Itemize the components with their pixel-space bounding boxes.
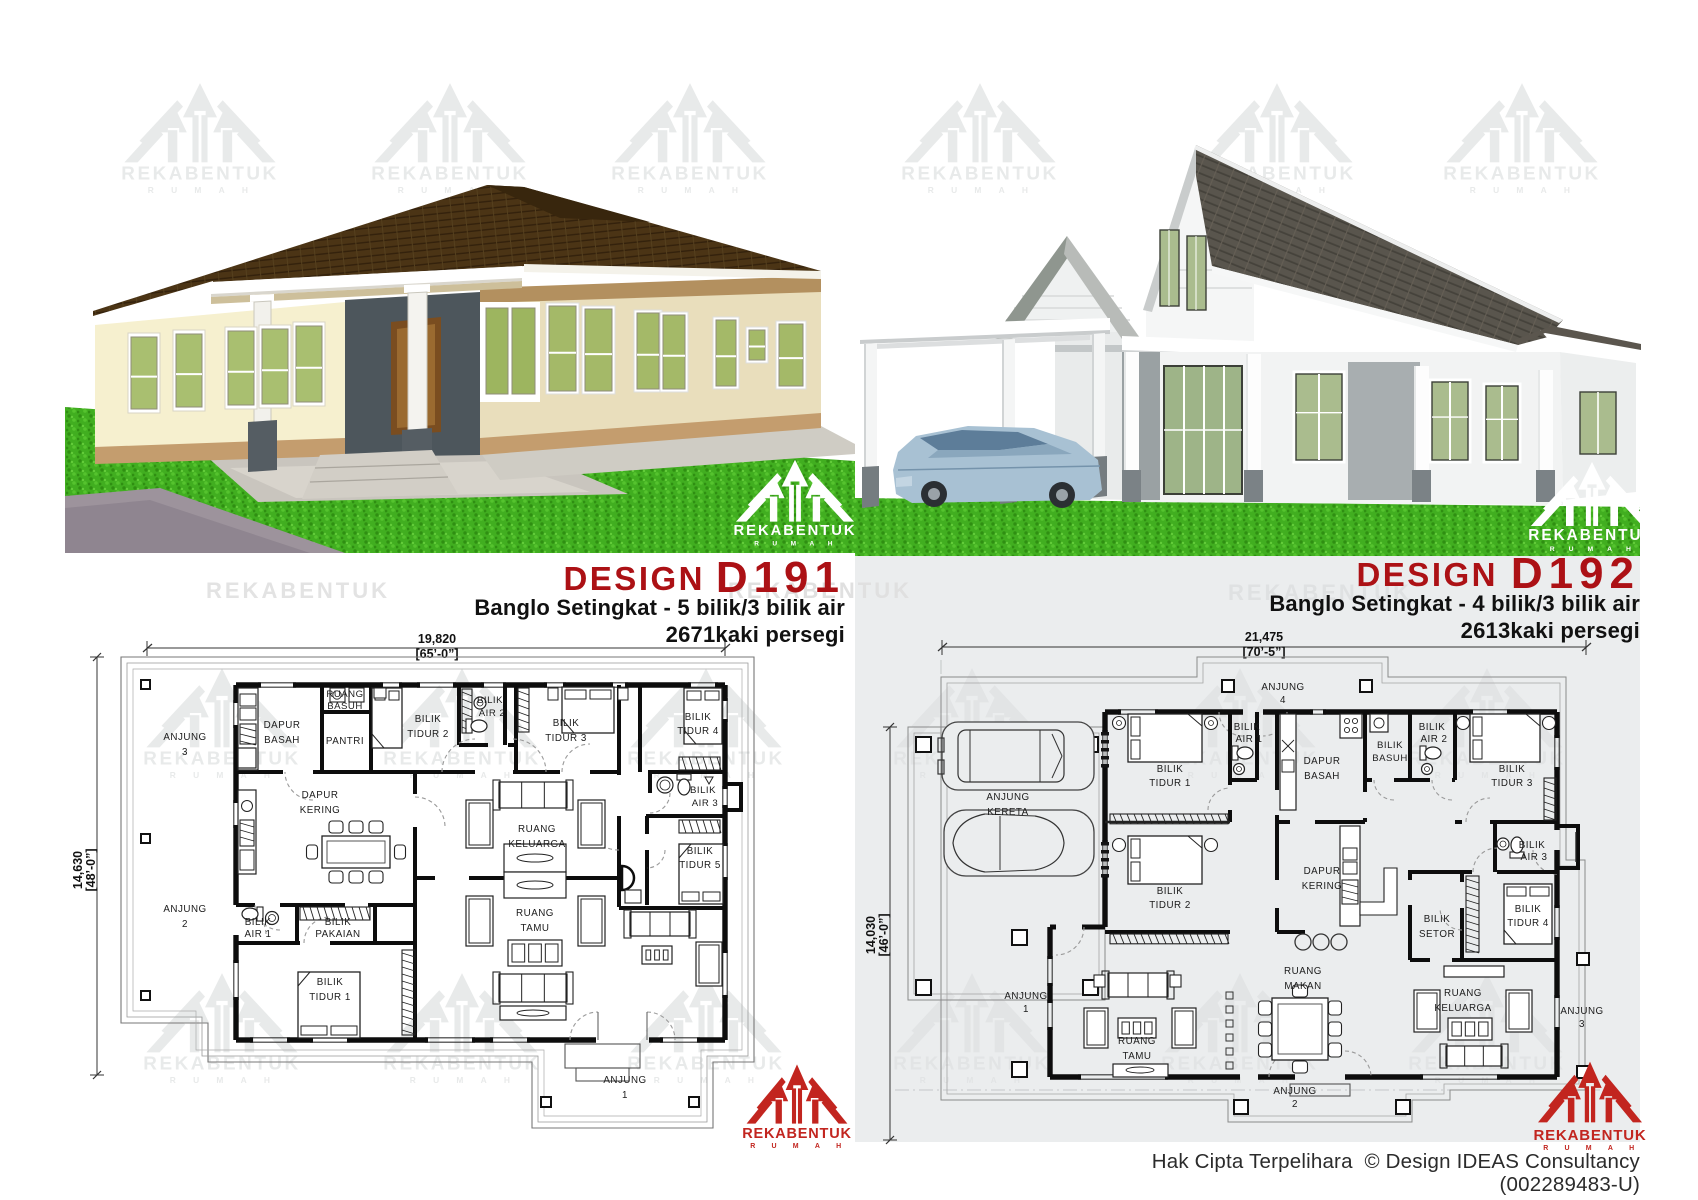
svg-text:ANJUNG: ANJUNG [1261,682,1304,693]
svg-text:BILIK: BILIK [1515,904,1541,915]
svg-text:RUANG: RUANG [518,824,556,835]
svg-text:BILIK: BILIK [477,695,503,706]
svg-text:BILIK: BILIK [325,917,351,928]
svg-text:AIR 2: AIR 2 [479,708,506,719]
svg-text:Hak Cipta Terpelihara © Desig: Hak Cipta Terpelihara © Design IDEAS Con… [1152,1150,1641,1173]
svg-text:Banglo Setingkat - 4 bilik/3 b: Banglo Setingkat - 4 bilik/3 bilik air [1269,591,1640,616]
svg-text:BILIK: BILIK [317,977,343,988]
svg-text:BILIK: BILIK [1499,764,1525,775]
svg-text:BILIK: BILIK [1519,840,1545,851]
svg-text:RUANG: RUANG [516,908,554,919]
svg-text:BILIK: BILIK [1424,914,1450,925]
svg-text:DAPUR: DAPUR [1304,866,1341,877]
svg-text:ANJUNG: ANJUNG [603,1075,646,1086]
svg-text:2613kaki persegi: 2613kaki persegi [1461,618,1640,643]
svg-text:1: 1 [622,1090,628,1101]
svg-text:3: 3 [1579,1019,1585,1030]
svg-text:BASUH: BASUH [327,701,363,712]
svg-text:4: 4 [1280,695,1286,706]
svg-text:PAKAIAN: PAKAIAN [315,929,360,940]
svg-text:KELUARGA: KELUARGA [508,839,565,850]
svg-text:TAMU: TAMU [520,923,549,934]
svg-text:REKABENTUK: REKABENTUK [742,1126,852,1142]
svg-text:KERETA: KERETA [987,807,1028,818]
svg-text:TIDUR 2: TIDUR 2 [1149,900,1191,911]
svg-text:BILIK: BILIK [687,846,713,857]
svg-text:2671kaki persegi: 2671kaki persegi [666,622,845,647]
svg-text:3: 3 [182,747,188,758]
svg-text:REKABENTUK: REKABENTUK [121,163,278,184]
svg-text:R U M A H: R U M A H [170,1075,274,1085]
svg-text:REKABENTUK: REKABENTUK [734,523,857,539]
svg-text:R U M A H: R U M A H [750,1143,844,1150]
svg-text:BASUH: BASUH [1372,753,1408,764]
svg-text:SETOR: SETOR [1419,929,1455,940]
svg-text:REKABENTUK: REKABENTUK [143,748,300,769]
svg-text:BILIK: BILIK [1234,722,1260,733]
svg-text:AIR 1: AIR 1 [244,929,271,940]
svg-text:TIDUR 4: TIDUR 4 [1507,918,1549,929]
svg-text:AIR 3: AIR 3 [692,798,719,809]
svg-text:2: 2 [182,919,188,930]
svg-text:R U M A H: R U M A H [148,185,252,195]
svg-text:TIDUR 5: TIDUR 5 [679,860,721,871]
svg-text:KERING: KERING [300,805,341,816]
svg-text:BILIK: BILIK [690,785,716,796]
svg-text:MAKAN: MAKAN [1284,981,1321,992]
svg-text:REKABENTUK: REKABENTUK [206,578,390,603]
svg-text:R U M A H: R U M A H [754,541,836,548]
svg-text:REKABENTUK: REKABENTUK [611,163,768,184]
svg-text:R U M A H: R U M A H [920,1075,1024,1085]
svg-text:ANJUNG: ANJUNG [1273,1086,1316,1097]
svg-text:KELUARGA: KELUARGA [1434,1003,1491,1014]
svg-text:14,630: 14,630 [71,851,85,889]
svg-text:ANJUNG: ANJUNG [163,732,206,743]
svg-text:KERING: KERING [1302,881,1343,892]
svg-text:R U M A H: R U M A H [654,1075,758,1085]
svg-text:ANJUNG: ANJUNG [1560,1006,1603,1017]
svg-text:[48’-0”]: [48’-0”] [84,848,98,891]
svg-text:ANJUNG: ANJUNG [1004,991,1047,1002]
svg-text:RUANG: RUANG [326,689,363,700]
svg-text:ANJUNG: ANJUNG [986,792,1029,803]
svg-text:AIR 3: AIR 3 [1520,852,1547,863]
svg-text:REKABENTUK: REKABENTUK [371,163,528,184]
svg-text:BILIK: BILIK [1377,740,1403,751]
svg-text:AIR 1: AIR 1 [1235,734,1262,745]
svg-text:TIDUR 3: TIDUR 3 [545,733,587,744]
svg-text:R U M A H: R U M A H [638,185,742,195]
svg-text:[46’-0”]: [46’-0”] [877,913,891,956]
svg-text:BILIK: BILIK [685,712,711,723]
svg-text:R U M A H: R U M A H [1470,185,1574,195]
svg-text:BILIK: BILIK [1419,722,1445,733]
svg-text:2: 2 [1292,1099,1298,1110]
svg-text:TAMU: TAMU [1122,1051,1151,1062]
svg-text:BASAH: BASAH [264,735,300,746]
svg-text:(002289483-U): (002289483-U) [1500,1173,1641,1196]
svg-text:[65’-0”]: [65’-0”] [415,647,458,661]
svg-text:R U M A H: R U M A H [410,1075,514,1085]
svg-text:DESIGN: DESIGN [1356,556,1498,593]
svg-text:BILIK: BILIK [415,714,441,725]
svg-text:1: 1 [1023,1004,1029,1015]
svg-text:14,030: 14,030 [864,916,878,954]
svg-text:REKABENTUK: REKABENTUK [383,1053,540,1074]
svg-text:BILIK: BILIK [1157,764,1183,775]
svg-text:BASAH: BASAH [1304,771,1340,782]
svg-text:DESIGN: DESIGN [563,560,705,597]
svg-text:DAPUR: DAPUR [264,720,301,731]
svg-text:DAPUR: DAPUR [302,790,339,801]
svg-text:RUANG: RUANG [1444,988,1482,999]
svg-text:RUANG: RUANG [1284,966,1322,977]
svg-text:Banglo Setingkat - 5 bilik/3 b: Banglo Setingkat - 5 bilik/3 bilik air [474,595,845,620]
svg-text:REKABENTUK: REKABENTUK [1528,527,1655,544]
svg-text:R U M A H: R U M A H [928,185,1032,195]
svg-text:21,475: 21,475 [1245,630,1283,644]
svg-text:BILIK: BILIK [1157,886,1183,897]
svg-text:TIDUR 1: TIDUR 1 [309,992,351,1003]
svg-text:TIDUR 3: TIDUR 3 [1491,778,1533,789]
svg-text:RUANG: RUANG [1118,1036,1156,1047]
svg-text:TIDUR 2: TIDUR 2 [407,729,449,740]
svg-text:TIDUR 1: TIDUR 1 [1149,778,1191,789]
svg-text:REKABENTUK: REKABENTUK [901,163,1058,184]
svg-text:BILIK: BILIK [553,718,579,729]
svg-text:PANTRI: PANTRI [326,736,364,747]
svg-text:REKABENTUK: REKABENTUK [1534,1127,1647,1144]
svg-text:REKABENTUK: REKABENTUK [1443,163,1600,184]
svg-text:ANJUNG: ANJUNG [163,904,206,915]
svg-text:TIDUR 4: TIDUR 4 [677,726,719,737]
svg-text:REKABENTUK: REKABENTUK [143,1053,300,1074]
svg-text:19,820: 19,820 [418,632,456,646]
svg-text:AIR 2: AIR 2 [1420,734,1447,745]
svg-text:BILIK: BILIK [245,917,271,928]
svg-text:REKABENTUK: REKABENTUK [627,1053,784,1074]
svg-text:DAPUR: DAPUR [1304,756,1341,767]
